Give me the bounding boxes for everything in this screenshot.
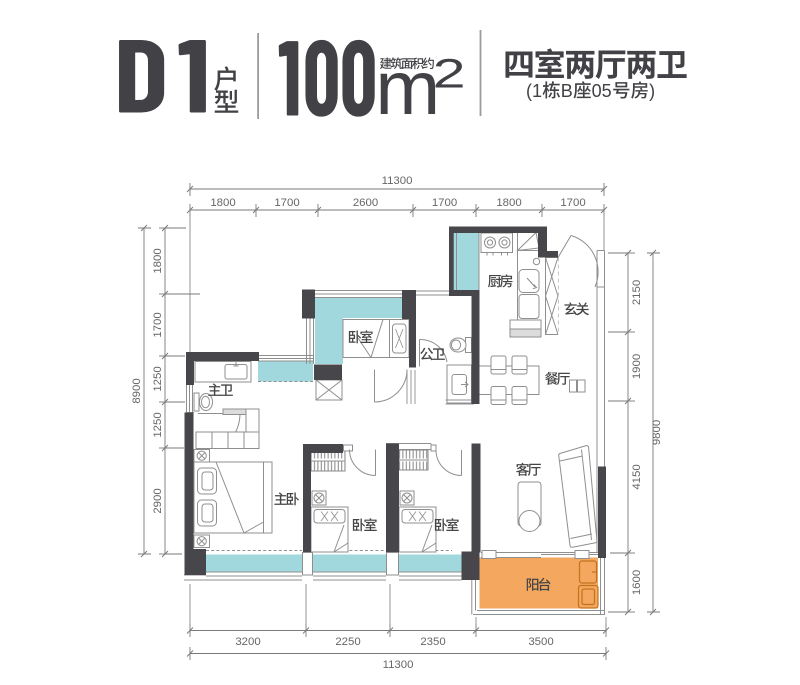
svg-text:1700: 1700 xyxy=(560,197,585,209)
svg-text:1800: 1800 xyxy=(152,248,164,273)
svg-text:1250: 1250 xyxy=(152,366,164,391)
svg-text:B: B xyxy=(561,81,573,101)
svg-text:2900: 2900 xyxy=(152,488,164,513)
svg-text:05: 05 xyxy=(592,81,612,101)
svg-text:4150: 4150 xyxy=(631,464,643,489)
svg-text:1700: 1700 xyxy=(152,312,164,337)
svg-text:1800: 1800 xyxy=(496,197,521,209)
svg-text:2350: 2350 xyxy=(420,636,445,648)
svg-text:): ) xyxy=(649,81,655,101)
svg-text:3200: 3200 xyxy=(235,636,260,648)
svg-text:11300: 11300 xyxy=(383,659,414,671)
svg-text:1800: 1800 xyxy=(210,197,235,209)
svg-text:1700: 1700 xyxy=(432,197,457,209)
svg-text:1900: 1900 xyxy=(631,354,643,379)
svg-text:9800: 9800 xyxy=(651,420,663,445)
svg-text:1600: 1600 xyxy=(631,570,643,595)
svg-text:11300: 11300 xyxy=(382,175,413,187)
svg-text:2600: 2600 xyxy=(353,197,378,209)
svg-text:3500: 3500 xyxy=(528,636,553,648)
svg-text:(1: (1 xyxy=(526,81,542,101)
svg-text:2150: 2150 xyxy=(631,280,643,305)
svg-text:2250: 2250 xyxy=(335,636,360,648)
svg-text:1700: 1700 xyxy=(274,197,299,209)
svg-text:1250: 1250 xyxy=(152,412,164,437)
svg-text:8900: 8900 xyxy=(131,378,143,403)
